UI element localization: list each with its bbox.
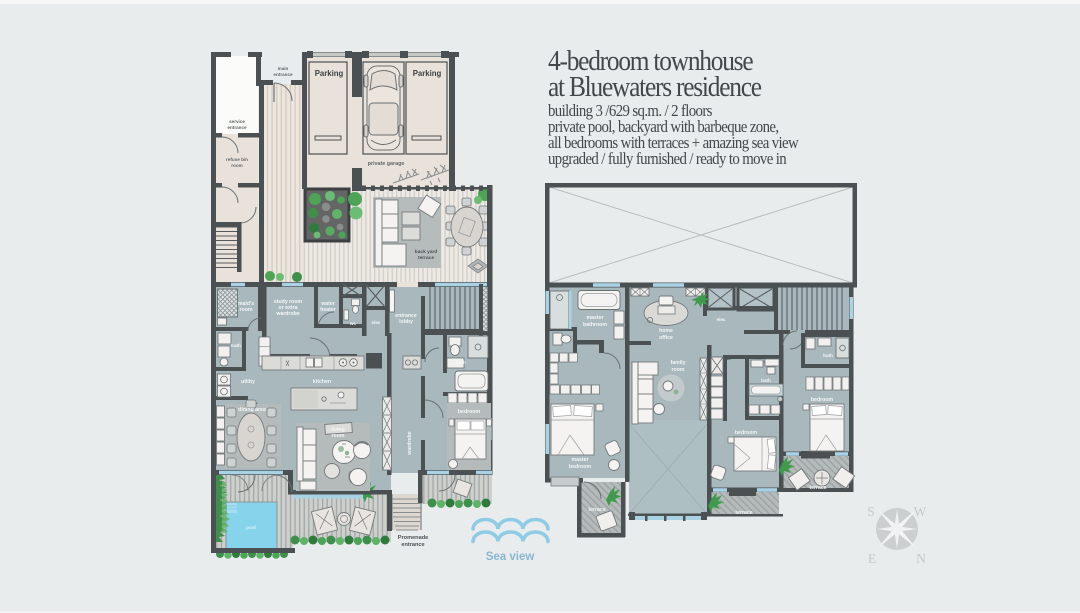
svg-text:room: room xyxy=(231,163,242,168)
svg-text:bath: bath xyxy=(761,378,771,383)
svg-text:S: S xyxy=(867,504,875,519)
svg-text:elec: elec xyxy=(372,320,381,325)
svg-text:terrace: terrace xyxy=(735,510,752,516)
svg-text:kitchen: kitchen xyxy=(313,379,331,385)
svg-text:bedroom: bedroom xyxy=(811,397,834,403)
svg-text:family: family xyxy=(671,360,686,366)
svg-text:entrance: entrance xyxy=(401,542,424,548)
svg-text:terrace: terrace xyxy=(809,485,826,491)
svg-text:main: main xyxy=(278,66,289,71)
svg-text:terrace: terrace xyxy=(418,255,434,261)
svg-text:entrance: entrance xyxy=(227,125,247,130)
svg-text:wardrobe: wardrobe xyxy=(407,431,413,455)
svg-text:service: service xyxy=(229,119,245,124)
svg-text:back yard: back yard xyxy=(415,249,437,255)
svg-text:N: N xyxy=(916,551,926,566)
svg-text:office: office xyxy=(659,335,673,341)
svg-text:pool: pool xyxy=(246,525,256,530)
svg-text:bedroom: bedroom xyxy=(458,409,481,415)
svg-text:master: master xyxy=(586,315,603,321)
svg-text:W: W xyxy=(914,504,927,519)
svg-text:private garage: private garage xyxy=(368,161,405,167)
svg-text:Promenade: Promenade xyxy=(398,535,428,541)
svg-text:room: room xyxy=(332,433,345,439)
svg-text:bathroom: bathroom xyxy=(583,322,607,328)
svg-text:bath: bath xyxy=(231,343,241,348)
svg-text:dining area: dining area xyxy=(238,407,266,413)
svg-text:heater: heater xyxy=(320,307,336,313)
svg-text:elec: elec xyxy=(717,317,726,322)
svg-text:utility: utility xyxy=(241,379,255,385)
svg-text:Parking: Parking xyxy=(413,69,442,78)
svg-text:bedroom: bedroom xyxy=(569,464,592,470)
svg-text:Parking: Parking xyxy=(315,69,344,78)
svg-text:bath: bath xyxy=(456,360,466,365)
svg-text:terrace: terrace xyxy=(588,507,605,513)
svg-text:Sea view: Sea view xyxy=(486,551,535,563)
svg-text:lobby: lobby xyxy=(399,319,413,325)
svg-text:E: E xyxy=(868,551,876,566)
svg-text:bedroom: bedroom xyxy=(735,430,758,436)
svg-text:refuse bin: refuse bin xyxy=(226,157,248,162)
svg-text:room: room xyxy=(240,307,253,313)
svg-text:room: room xyxy=(672,367,685,373)
svg-text:wardrobe: wardrobe xyxy=(275,311,299,317)
svg-text:bath: bath xyxy=(823,353,833,358)
svg-text:master: master xyxy=(571,457,588,463)
svg-text:home: home xyxy=(659,328,673,334)
svg-text:entrance: entrance xyxy=(273,72,293,77)
svg-text:wc: wc xyxy=(349,321,357,326)
